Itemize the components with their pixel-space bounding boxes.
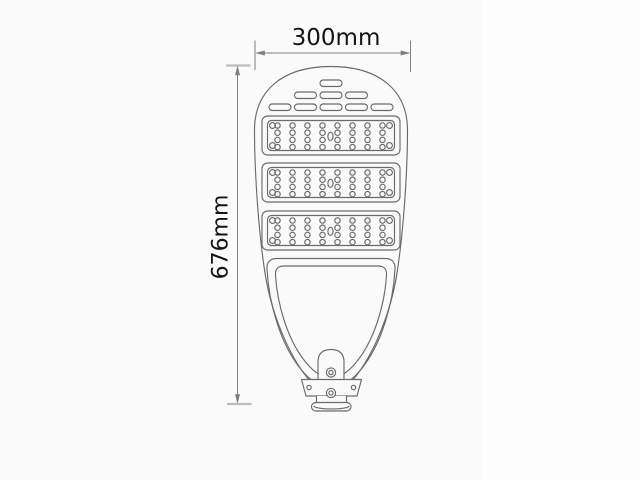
height-dimension-label: 676mm (209, 195, 234, 280)
dimension-drawing-page: 300mm 676mm (0, 0, 640, 480)
bracket-bolt (326, 368, 335, 377)
street-light-diagram (0, 0, 640, 480)
pole-collar (312, 403, 352, 412)
bracket-bolt (326, 388, 335, 397)
width-dimension-label: 300mm (292, 25, 381, 51)
